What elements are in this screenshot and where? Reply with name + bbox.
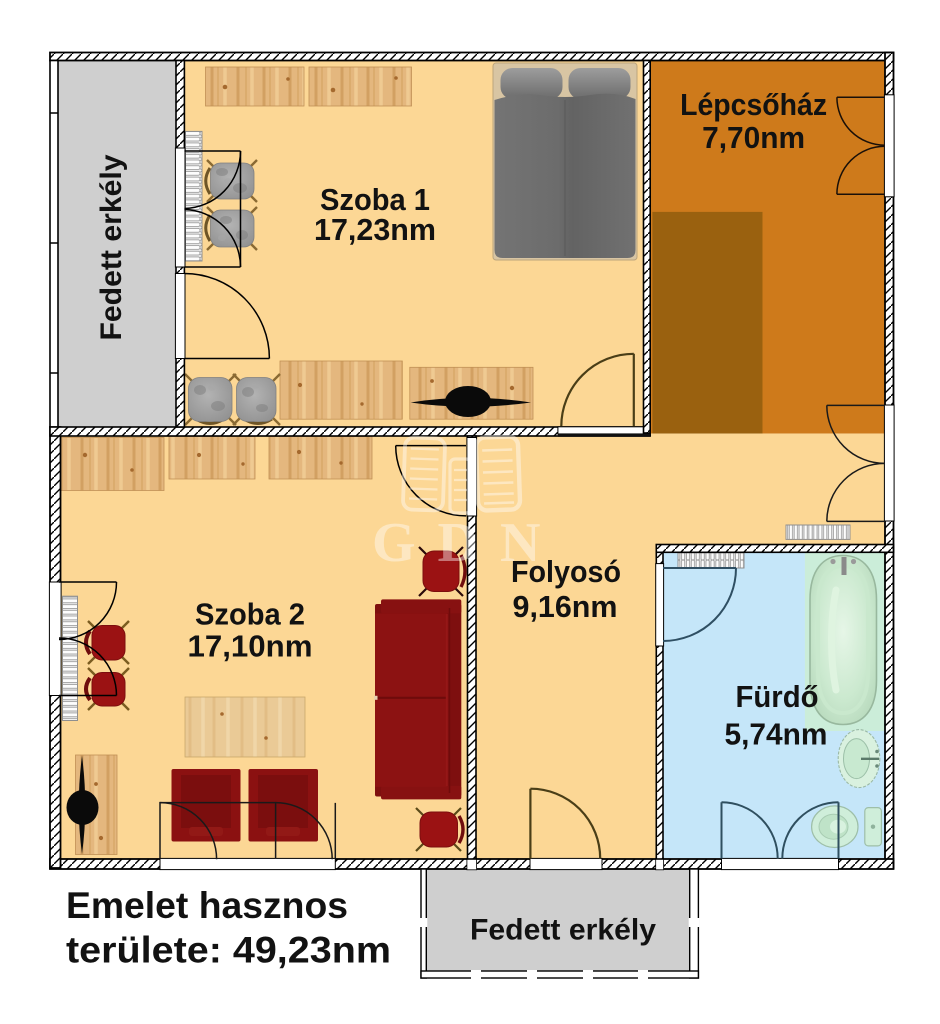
svg-text:Lépcsőház: Lépcsőház bbox=[680, 87, 827, 122]
svg-text:7,70nm: 7,70nm bbox=[702, 120, 805, 155]
svg-text:Fedett erkély: Fedett erkély bbox=[470, 914, 656, 947]
svg-text:Folyosó: Folyosó bbox=[511, 554, 621, 589]
svg-text:Szoba 2: Szoba 2 bbox=[195, 597, 305, 632]
svg-text:9,16nm: 9,16nm bbox=[513, 589, 618, 624]
svg-text:területe: 49,23nm: területe: 49,23nm bbox=[66, 930, 391, 971]
svg-text:Emelet hasznos: Emelet hasznos bbox=[66, 885, 348, 926]
svg-text:17,23nm: 17,23nm bbox=[314, 212, 436, 247]
svg-text:Fürdő: Fürdő bbox=[736, 679, 819, 714]
svg-text:5,74nm: 5,74nm bbox=[725, 717, 828, 752]
svg-text:Fedett erkély: Fedett erkély bbox=[95, 154, 128, 340]
svg-text:17,10nm: 17,10nm bbox=[188, 629, 313, 664]
